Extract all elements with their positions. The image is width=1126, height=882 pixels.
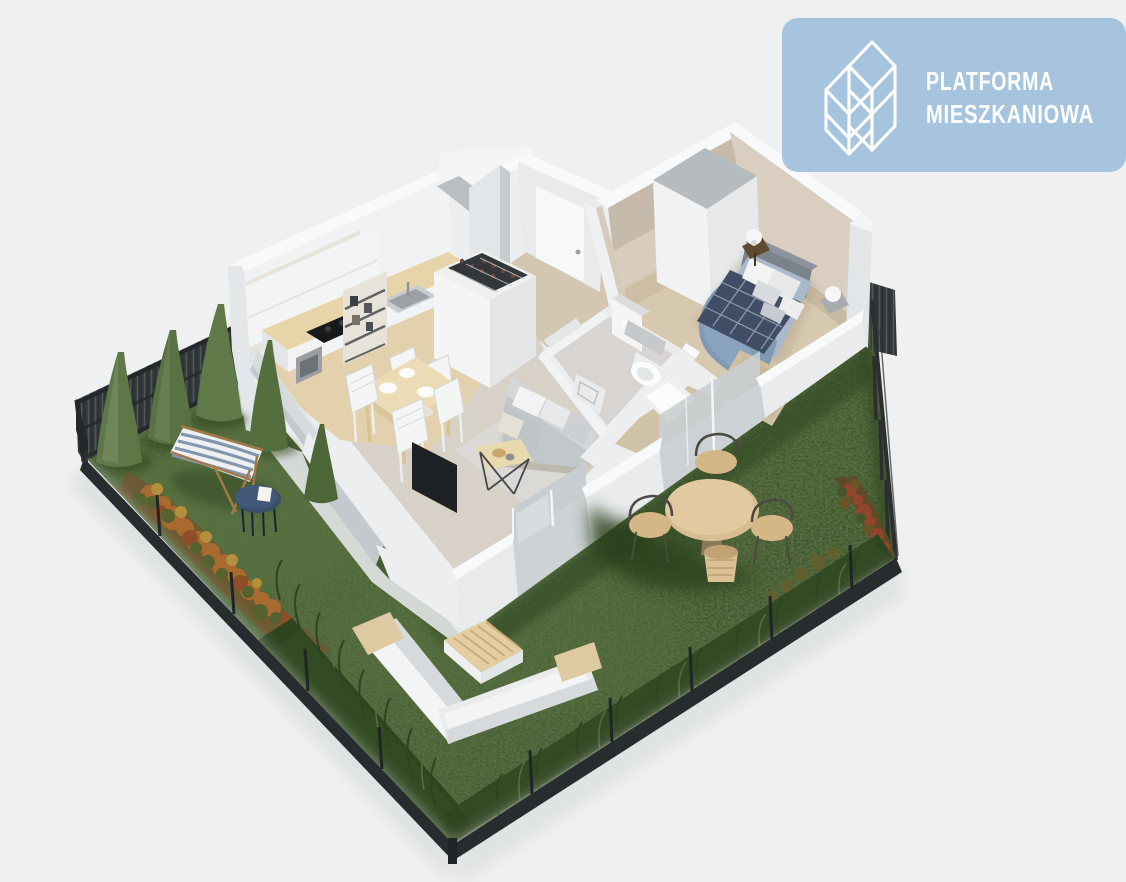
svg-text:MIESZKANIOWA: MIESZKANIOWA (926, 99, 1094, 129)
svg-text:PLATFORMA: PLATFORMA (926, 66, 1054, 96)
